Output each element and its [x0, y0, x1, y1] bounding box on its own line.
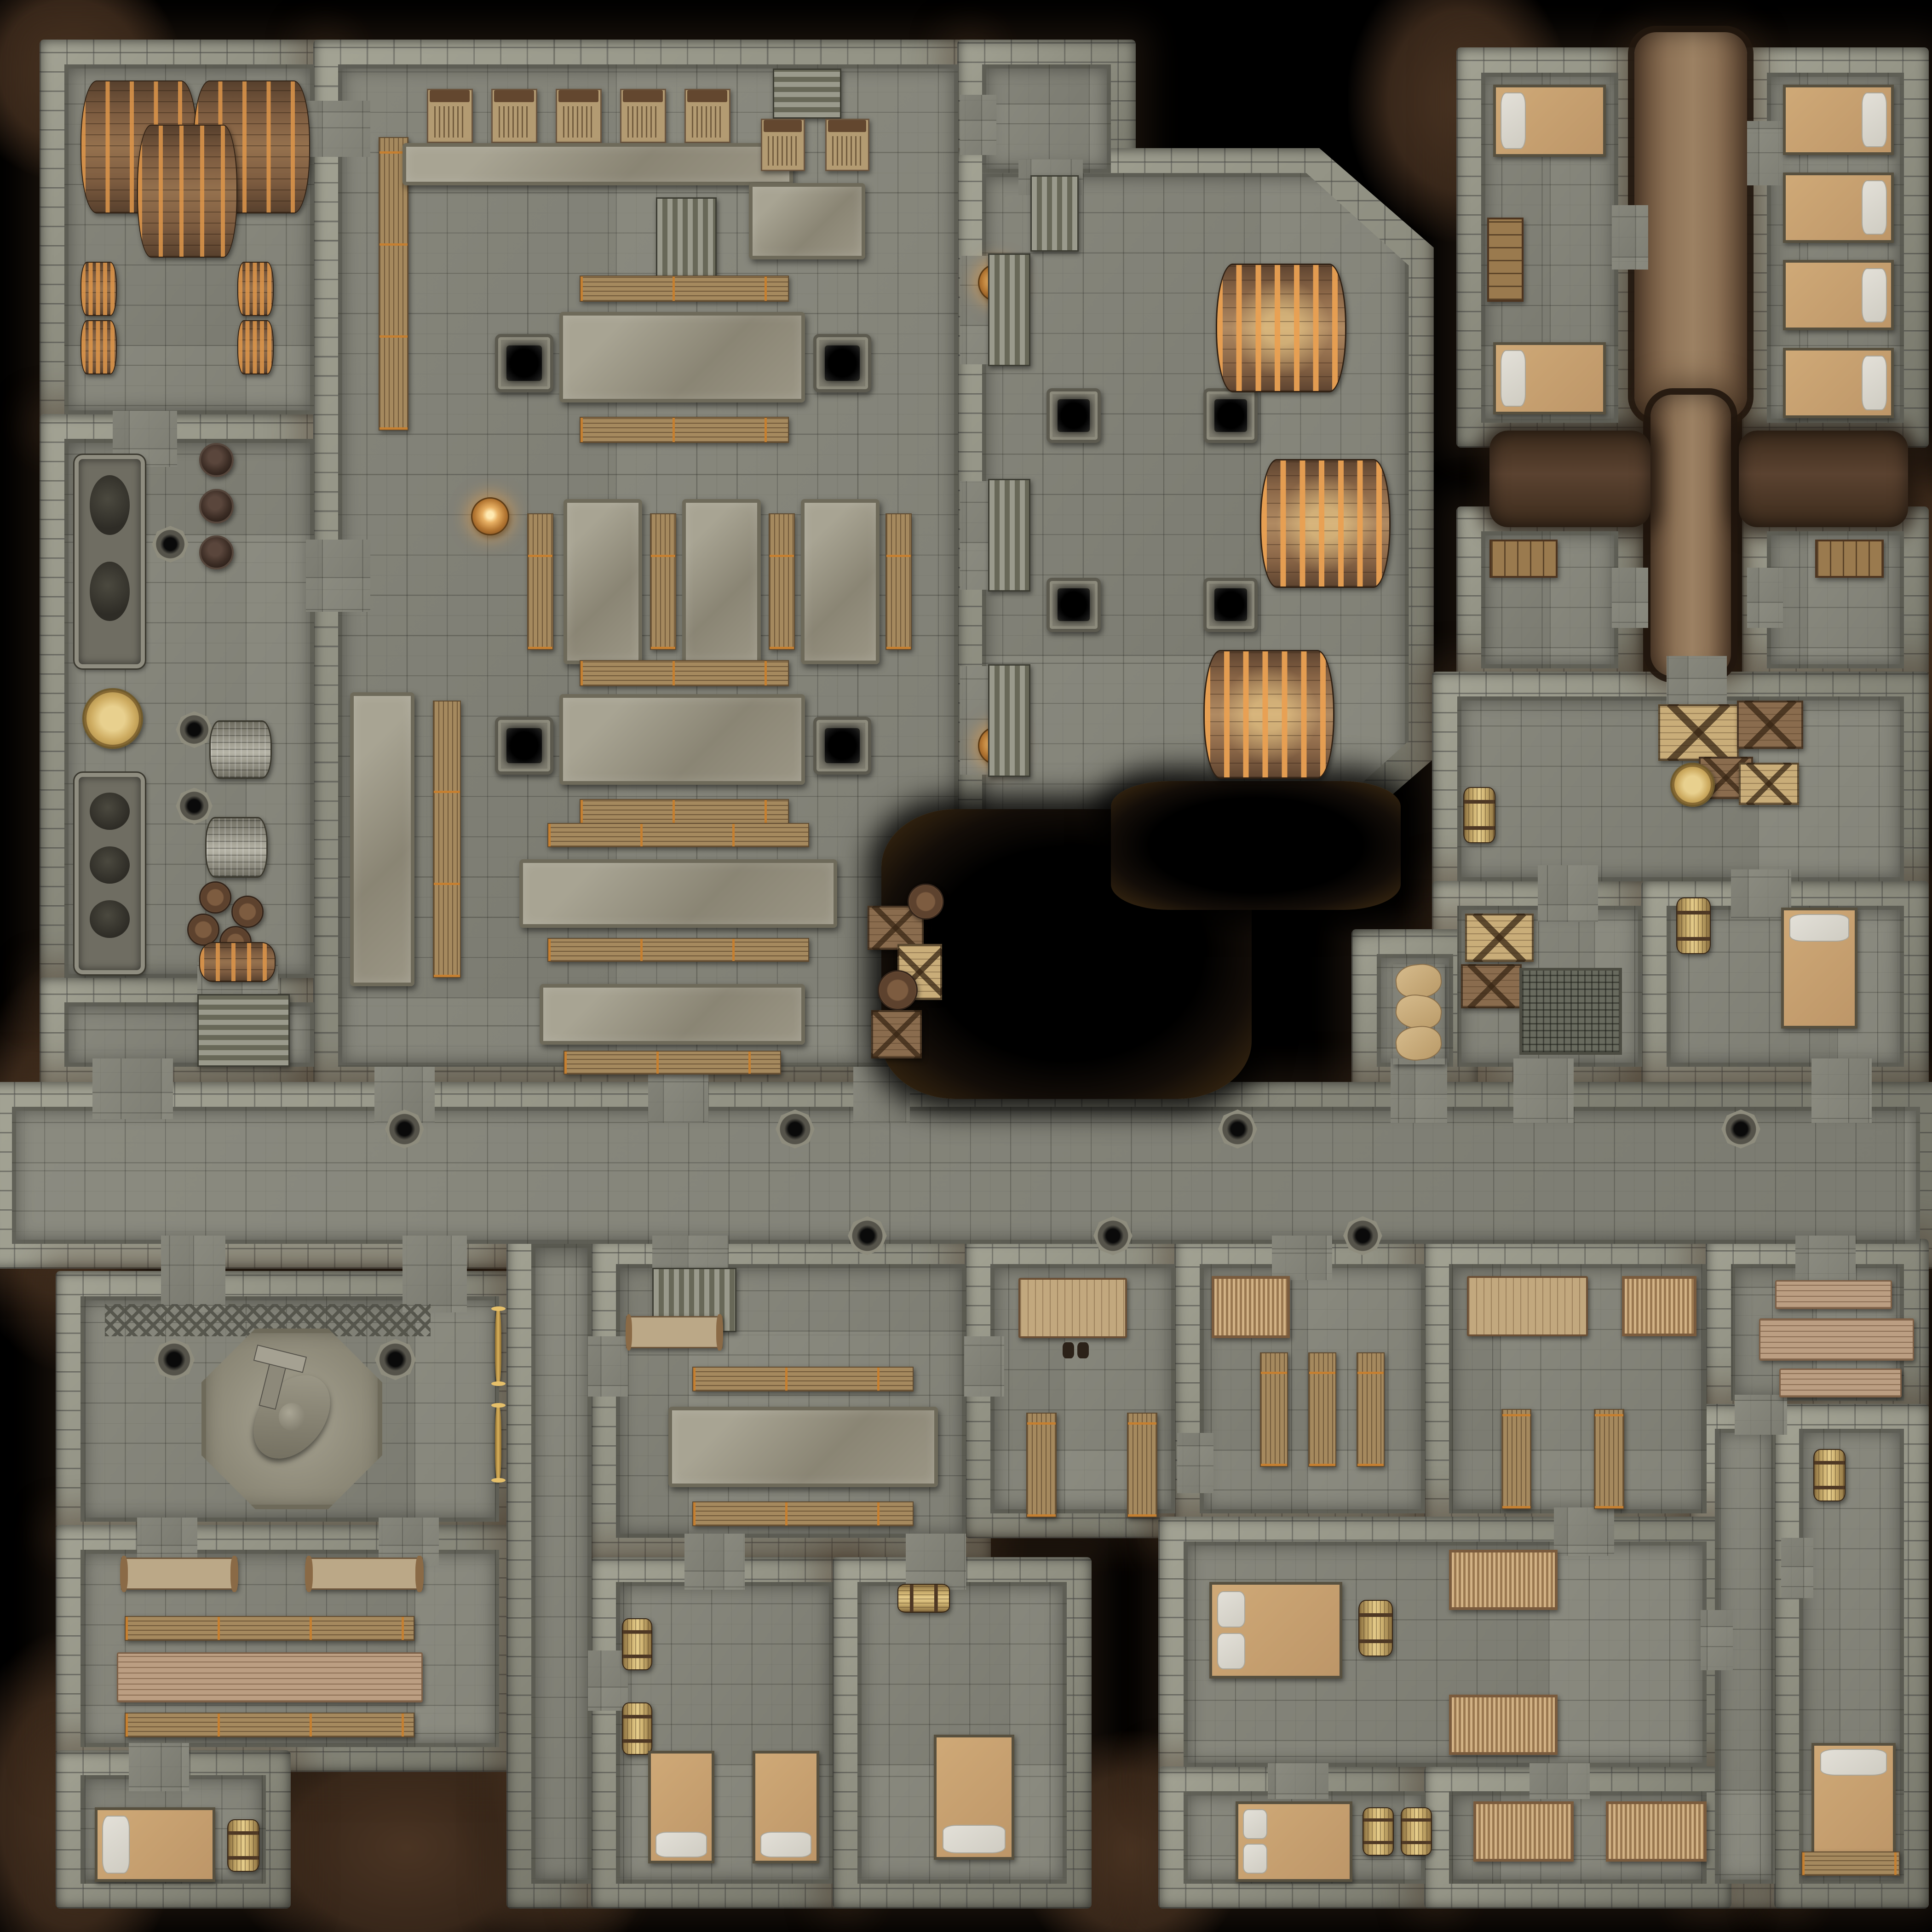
pillow [1820, 1749, 1886, 1776]
plank-v [527, 513, 553, 650]
table-wood [117, 1652, 423, 1702]
barrel-s [80, 320, 117, 374]
stonevat [209, 720, 272, 779]
keg [227, 1819, 259, 1872]
board [121, 1558, 238, 1590]
doorway [1811, 1058, 1872, 1123]
trough [75, 455, 145, 668]
firepit [495, 334, 553, 392]
chair [761, 119, 805, 171]
doorway [1612, 205, 1648, 270]
plank-v [1308, 1352, 1336, 1467]
bench-h [125, 1713, 414, 1737]
plank-v [1501, 1409, 1532, 1510]
plank-v [769, 513, 795, 650]
vat [1203, 650, 1334, 779]
doorway [1391, 1058, 1447, 1123]
plank-v [1127, 1413, 1157, 1518]
statue [225, 1348, 358, 1485]
bench-h [125, 1616, 414, 1641]
bench-h [580, 799, 789, 825]
floor-corridor-v-west [531, 1244, 592, 1884]
stairs-v [656, 197, 716, 282]
slab-v [350, 692, 414, 986]
mat [1449, 1695, 1558, 1755]
floor-nook-ne [982, 64, 1111, 173]
doorway [1795, 1236, 1856, 1280]
pillow [655, 1832, 707, 1857]
trough [75, 773, 145, 974]
bed [1493, 342, 1606, 415]
bench-h [1801, 1851, 1900, 1876]
stonevat [205, 817, 268, 877]
trough-basin [90, 475, 129, 535]
bed [1236, 1801, 1352, 1882]
firepit [495, 717, 553, 775]
bed [648, 1751, 714, 1863]
stairs-h [773, 69, 841, 119]
doorway [1701, 1610, 1733, 1670]
slab [540, 984, 805, 1044]
bench-h [580, 417, 789, 443]
doorway [1538, 865, 1598, 922]
trough-basin [90, 846, 129, 884]
slab [559, 312, 805, 402]
doorway [1747, 568, 1783, 628]
slab [668, 1407, 938, 1487]
dresser [1487, 218, 1524, 302]
doorway [1747, 121, 1783, 185]
barrel-s [237, 262, 274, 316]
dresser-h [1489, 540, 1558, 578]
lid [187, 914, 219, 946]
plank-v [650, 513, 676, 650]
doorway [1612, 568, 1648, 628]
doorway [402, 1236, 467, 1312]
trough-basin [90, 900, 129, 937]
pillow [1243, 1844, 1267, 1874]
doorway [129, 1743, 189, 1791]
lid [908, 884, 944, 920]
bed [1811, 1743, 1896, 1860]
cave-rock [1489, 431, 1650, 527]
doorway [1272, 1236, 1332, 1280]
cave-path [1634, 32, 1747, 419]
chair [556, 89, 602, 143]
boots [1061, 1342, 1091, 1358]
doorway [960, 95, 996, 155]
doorway [1735, 1395, 1787, 1435]
pillow [1217, 1591, 1245, 1627]
doorway [906, 1534, 966, 1590]
chasm-pit [1111, 781, 1401, 910]
floor-main-corridor [12, 1107, 1920, 1244]
desk [1018, 1278, 1127, 1338]
chair [427, 89, 473, 143]
crate-t [1739, 763, 1799, 805]
chair [620, 89, 667, 143]
doorway [1554, 1507, 1614, 1556]
slab [519, 859, 837, 928]
stairs-v [988, 664, 1030, 777]
plank-v [1260, 1352, 1288, 1467]
dresser-h [1815, 540, 1884, 578]
rug [1519, 968, 1622, 1054]
lid [199, 881, 231, 914]
crate-t [1658, 704, 1739, 761]
keg [1463, 787, 1495, 844]
keg [1676, 897, 1710, 954]
board [626, 1316, 723, 1348]
bed [1783, 85, 1894, 155]
keg [1358, 1600, 1392, 1656]
plank-v [1594, 1409, 1624, 1510]
pillow [1243, 1809, 1267, 1839]
lid [231, 896, 264, 928]
barrel-s [237, 320, 274, 374]
chair [825, 119, 869, 171]
bowl [199, 535, 233, 569]
pillow [1501, 350, 1526, 406]
pillow [1862, 268, 1887, 323]
pillow [1789, 914, 1849, 942]
table-wood [1779, 1368, 1902, 1397]
plank-v [1357, 1352, 1385, 1467]
board [306, 1558, 423, 1590]
bench-v [433, 701, 461, 978]
pillow [1217, 1633, 1245, 1669]
dungeon-map [0, 0, 1932, 1932]
doorway [92, 1058, 173, 1119]
firepit [1046, 388, 1101, 443]
doorway [588, 1336, 628, 1397]
slab-v [801, 499, 880, 664]
pole [495, 1308, 501, 1385]
slab [559, 694, 805, 785]
pillow [1501, 92, 1526, 149]
mat [1622, 1276, 1696, 1336]
brazier [471, 497, 509, 535]
firepit [1203, 578, 1258, 632]
firepit [1203, 388, 1258, 443]
pillow [1862, 180, 1887, 235]
barrel-s [199, 942, 276, 983]
bench-h [580, 276, 789, 302]
doorway [306, 540, 370, 612]
keg [1813, 1449, 1846, 1501]
keg-h [897, 1584, 950, 1613]
slab [749, 183, 866, 259]
crate-b [1737, 701, 1803, 749]
bed [753, 1751, 819, 1863]
bed [95, 1807, 216, 1882]
pillow [943, 1825, 1006, 1853]
bed [1783, 260, 1894, 330]
bed [1209, 1582, 1342, 1679]
lid-gold [1670, 763, 1714, 807]
pillow [760, 1832, 811, 1857]
mat [1212, 1276, 1290, 1339]
slab [402, 143, 793, 185]
slab-v [563, 499, 642, 664]
plank-v [1026, 1413, 1057, 1518]
chair [684, 89, 731, 143]
desk [1467, 1276, 1588, 1336]
crate-t [1465, 914, 1534, 962]
plate-gold [82, 688, 143, 748]
bed [1783, 172, 1894, 243]
stairs-v [1030, 175, 1079, 252]
slab-v [682, 499, 761, 664]
barrel-big [137, 125, 238, 258]
doorway [1268, 1763, 1328, 1800]
firepit [813, 334, 872, 392]
mat [1473, 1801, 1574, 1862]
doorway [1529, 1763, 1590, 1800]
firepit [1046, 578, 1101, 632]
firepit [813, 717, 872, 775]
cave-path [1650, 395, 1731, 677]
keg [1363, 1807, 1394, 1856]
stairs-h [197, 994, 290, 1067]
mat [1606, 1801, 1707, 1862]
bench-h [692, 1367, 914, 1391]
bench-h [580, 660, 789, 686]
vat [1216, 264, 1346, 392]
keg [622, 1618, 652, 1671]
trough-basin [90, 793, 129, 830]
doorway [1177, 1433, 1213, 1493]
crate-b [1461, 964, 1521, 1008]
sacks [1393, 964, 1445, 1065]
lid [878, 970, 918, 1011]
keg [622, 1702, 652, 1755]
table-wood [1759, 1318, 1914, 1361]
table-wood [1775, 1280, 1892, 1309]
bed [1783, 348, 1894, 418]
bench-h [563, 1051, 781, 1075]
vat [1260, 459, 1391, 588]
chair [491, 89, 538, 143]
doorway [306, 101, 370, 157]
stairs-v [988, 479, 1030, 592]
doorway [1513, 1058, 1574, 1123]
pole [495, 1405, 501, 1481]
doorway [648, 1067, 708, 1123]
pillow [1862, 356, 1887, 410]
pillow [1862, 92, 1887, 147]
crate-b [871, 1010, 921, 1058]
trough-basin [90, 562, 129, 621]
stairs-v [988, 253, 1030, 366]
bowl [199, 489, 233, 523]
doorway [1781, 1538, 1813, 1598]
bed [934, 1735, 1014, 1859]
mat [1449, 1550, 1558, 1610]
doorway [161, 1236, 225, 1312]
bowl [199, 443, 233, 477]
barrel-s [80, 262, 117, 316]
bench-h [692, 1501, 914, 1526]
bench-h [547, 938, 809, 962]
doorway [684, 1534, 745, 1590]
keg [1401, 1807, 1432, 1856]
sack [1394, 1024, 1443, 1063]
doorway [964, 1336, 1005, 1397]
cave-rock [1739, 431, 1908, 527]
statue-head [279, 1403, 305, 1431]
bed [1781, 908, 1857, 1029]
plank-v [885, 513, 912, 650]
bed [1493, 85, 1606, 157]
pillow [102, 1816, 130, 1874]
bench-h [547, 823, 809, 847]
